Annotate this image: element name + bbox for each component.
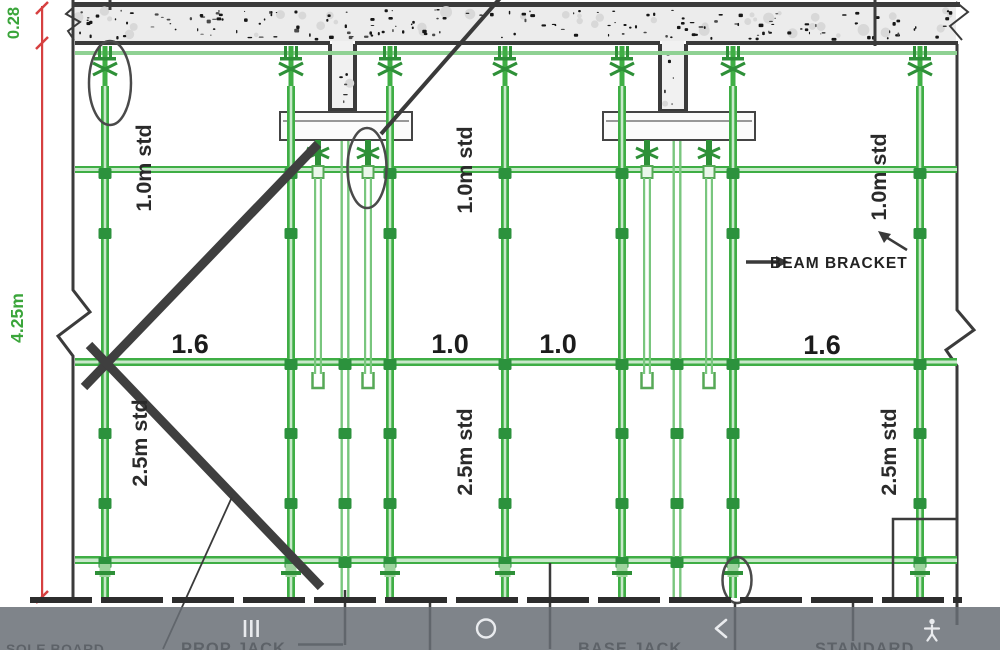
home-icon — [458, 607, 514, 650]
android-navigation-bar — [0, 607, 1000, 650]
total-height-dim: 4.25m — [7, 293, 27, 343]
left-wall-break — [58, 0, 90, 600]
ledger-bottom — [75, 556, 957, 564]
screenshot-root: 0.28 4.25m 1.0m std 1.0m std 1.0m std 2.… — [0, 0, 1000, 650]
lower-std-label-2: 2.5m std — [453, 408, 477, 495]
annotation-leaders — [163, 237, 907, 650]
bay-width-4: 1.6 — [803, 330, 841, 360]
diagonal-brace-2 — [89, 345, 321, 587]
concrete-slab — [73, 2, 960, 45]
accessibility-icon — [904, 607, 960, 650]
upper-std-label-1: 1.0m std — [132, 124, 156, 211]
standard-vertical — [493, 46, 517, 598]
ledger-upper — [75, 166, 957, 173]
drop-prop — [307, 140, 329, 388]
standard-vertical — [93, 46, 117, 598]
upper-column-line — [874, 0, 877, 46]
ledger-under-slab — [75, 51, 957, 55]
bay-width-1: 1.6 — [171, 329, 209, 359]
back-button[interactable] — [694, 607, 750, 650]
upper-std-label-2: 1.0m std — [453, 126, 477, 213]
ne-arrowhead — [878, 231, 891, 243]
upper-line-stub — [109, 0, 112, 10]
recents-button[interactable] — [223, 607, 279, 650]
bay-width-3: 1.0 — [539, 329, 577, 359]
lower-std-label-3: 2.5m std — [877, 408, 901, 495]
prop-jack-tube — [671, 141, 684, 598]
lower-std-label-1: 2.5m std — [128, 399, 152, 486]
recents-icon — [223, 607, 279, 650]
bay-width-2: 1.0 — [431, 329, 469, 359]
drop-prop — [636, 140, 658, 388]
standard-vertical — [908, 46, 932, 598]
accessibility-button[interactable] — [904, 607, 960, 650]
prop-jack-tube — [339, 141, 352, 598]
drop-prop — [698, 140, 720, 388]
beam-bracket-label: BEAM BRACKET — [770, 255, 908, 272]
drawing-canvas: 0.28 4.25m 1.0m std 1.0m std 1.0m std 2.… — [0, 0, 1000, 650]
upper-std-label-3: 1.0m std — [867, 133, 891, 220]
home-button[interactable] — [458, 607, 514, 650]
red-dimension-line — [36, 2, 48, 603]
back-icon — [694, 607, 750, 650]
drop-prop — [357, 140, 379, 388]
right-wall-break — [946, 44, 974, 625]
slab-thickness-dim: 0.28 — [5, 7, 23, 39]
